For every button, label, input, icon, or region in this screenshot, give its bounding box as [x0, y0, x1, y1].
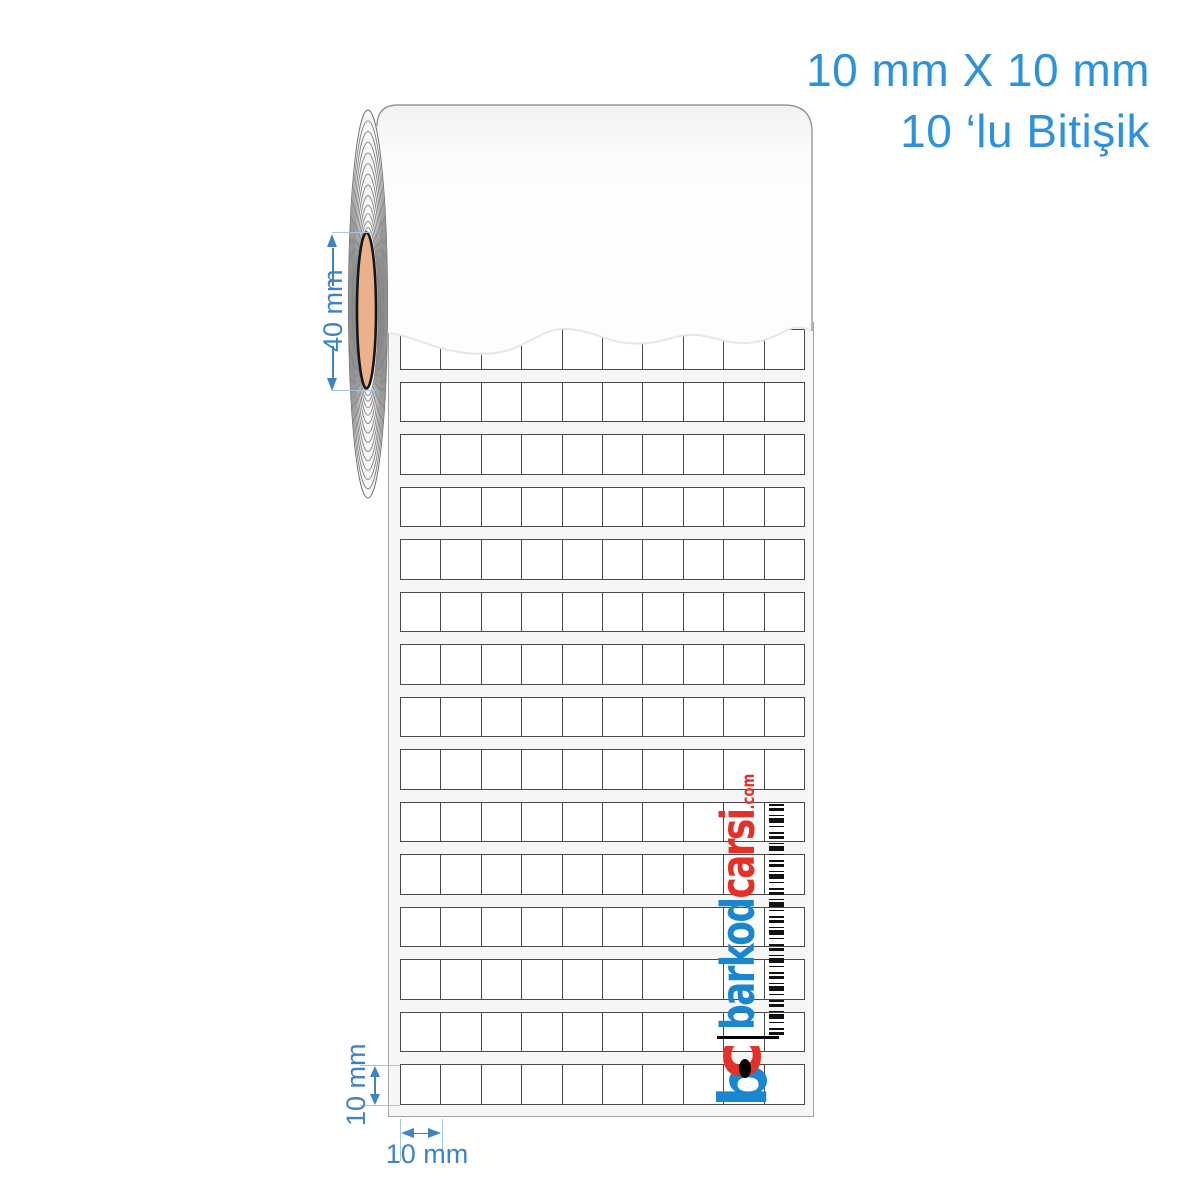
label-cell: [441, 803, 481, 842]
label-row: [400, 592, 805, 633]
label-cell: [563, 540, 603, 579]
brand-icon-dot: [739, 1059, 751, 1078]
arrow-down-icon: [327, 378, 337, 391]
label-cell: [563, 330, 603, 369]
size-caption-line2: 10 ‘lu Bitişik: [806, 101, 1150, 162]
label-row: [400, 697, 805, 738]
label-cell: [684, 645, 724, 684]
label-cell: [603, 383, 643, 422]
label-cell: [522, 750, 562, 789]
label-cell: [765, 330, 804, 369]
sheet-face: [377, 105, 812, 354]
label-cell: [684, 593, 724, 632]
label-cell: [522, 383, 562, 422]
label-cell: [603, 540, 643, 579]
label-cell: [522, 803, 562, 842]
label-cell: [563, 698, 603, 737]
label-cell: [441, 855, 481, 894]
label-cell: [643, 750, 683, 789]
label-cell: [684, 488, 724, 527]
brand-bc-icon: b c: [721, 1041, 791, 1107]
label-cell: [441, 488, 481, 527]
arrow-down-icon: [370, 1094, 380, 1105]
label-roll-product-image: b c barkodcarsi.com 10 mm X 10 mm 10 ‘lu…: [0, 0, 1200, 1200]
label-cell: [603, 1013, 643, 1052]
label-cell: [765, 435, 804, 474]
label-cell: [603, 750, 643, 789]
label-cell: [643, 488, 683, 527]
roll-core: [357, 233, 376, 389]
label-cell: [603, 1065, 643, 1104]
label-cell: [441, 540, 481, 579]
barcode-graphic: [769, 799, 784, 1035]
arrow-up-icon: [327, 234, 337, 247]
label-cell: [401, 1065, 441, 1104]
label-cell: [684, 435, 724, 474]
label-cell: [482, 593, 522, 632]
label-cell: [563, 1013, 603, 1052]
label-cell: [401, 1013, 441, 1052]
label-cell: [482, 803, 522, 842]
label-cell: [482, 698, 522, 737]
label-cell: [603, 593, 643, 632]
label-cell: [603, 698, 643, 737]
label-row: [400, 539, 805, 580]
label-cell: [563, 593, 603, 632]
label-cell: [643, 1065, 683, 1104]
label-height-label: 10 mm: [343, 1046, 369, 1126]
label-cell: [724, 383, 764, 422]
label-cell: [401, 540, 441, 579]
label-cell: [724, 645, 764, 684]
label-cell: [643, 908, 683, 947]
label-cell: [482, 855, 522, 894]
sheet-outline: [377, 105, 812, 331]
label-cell: [603, 855, 643, 894]
label-cell: [684, 698, 724, 737]
brand-divider: [717, 1036, 779, 1039]
label-cell: [482, 435, 522, 474]
arrow-up-icon: [370, 1066, 380, 1077]
label-cell: [401, 383, 441, 422]
size-caption: 10 mm X 10 mm 10 ‘lu Bitişik: [806, 40, 1150, 162]
label-cell: [522, 540, 562, 579]
label-cell: [401, 960, 441, 999]
label-cell: [522, 645, 562, 684]
label-row: [400, 329, 805, 370]
label-cell: [643, 435, 683, 474]
label-cell: [684, 330, 724, 369]
label-cell: [603, 435, 643, 474]
label-cell: [482, 960, 522, 999]
size-caption-line1: 10 mm X 10 mm: [806, 40, 1150, 101]
label-cell: [765, 593, 804, 632]
label-cell: [401, 908, 441, 947]
label-cell: [603, 645, 643, 684]
label-cell: [522, 908, 562, 947]
label-cell: [482, 908, 522, 947]
label-cell: [522, 330, 562, 369]
label-cell: [563, 960, 603, 999]
label-cell: [482, 1065, 522, 1104]
label-cell: [563, 750, 603, 789]
label-cell: [441, 330, 481, 369]
label-cell: [684, 383, 724, 422]
label-cell: [522, 960, 562, 999]
label-cell: [401, 593, 441, 632]
label-cell: [401, 803, 441, 842]
label-cell: [643, 593, 683, 632]
label-cell: [441, 593, 481, 632]
label-cell: [563, 908, 603, 947]
brand-name: barkodcarsi.com: [715, 774, 761, 1030]
label-cell: [482, 750, 522, 789]
label-cell: [603, 488, 643, 527]
label-cell: [643, 803, 683, 842]
label-cell: [441, 383, 481, 422]
label-cell: [643, 330, 683, 369]
label-cell: [643, 1013, 683, 1052]
label-cell: [522, 593, 562, 632]
label-cell: [643, 383, 683, 422]
label-cell: [522, 698, 562, 737]
label-cell: [401, 750, 441, 789]
arrow-left-icon: [401, 1128, 414, 1138]
label-cell: [401, 330, 441, 369]
label-cell: [765, 488, 804, 527]
label-cell: [563, 435, 603, 474]
label-cell: [603, 330, 643, 369]
label-cell: [563, 488, 603, 527]
label-cell: [724, 435, 764, 474]
label-cell: [441, 645, 481, 684]
label-cell: [563, 803, 603, 842]
brand-icon-letter-c: c: [705, 1042, 771, 1079]
label-cell: [522, 1065, 562, 1104]
label-cell: [563, 855, 603, 894]
label-row: [400, 487, 805, 528]
label-cell: [401, 435, 441, 474]
label-cell: [603, 803, 643, 842]
label-cell: [724, 593, 764, 632]
label-cell: [724, 488, 764, 527]
label-row: [400, 434, 805, 475]
label-cell: [441, 1013, 481, 1052]
label-cell: [401, 488, 441, 527]
core-dimension-label: 40 mm: [320, 272, 346, 352]
arrow-right-icon: [428, 1128, 441, 1138]
label-cell: [441, 435, 481, 474]
label-cell: [441, 1065, 481, 1104]
label-cell: [643, 698, 683, 737]
label-cell: [765, 540, 804, 579]
brand-name-primary: barkod: [711, 899, 765, 1030]
label-cell: [643, 960, 683, 999]
dimension-line: [374, 1076, 376, 1095]
label-cell: [522, 435, 562, 474]
label-cell: [482, 383, 522, 422]
label-cell: [765, 750, 804, 789]
label-cell: [482, 645, 522, 684]
label-cell: [482, 330, 522, 369]
label-cell: [765, 645, 804, 684]
label-cell: [401, 855, 441, 894]
label-cell: [482, 488, 522, 527]
label-cell: [522, 488, 562, 527]
label-cell: [482, 1013, 522, 1052]
label-cell: [765, 698, 804, 737]
label-cell: [482, 540, 522, 579]
brand-name-secondary: carsi: [711, 809, 765, 898]
label-cell: [441, 750, 481, 789]
label-cell: [441, 698, 481, 737]
label-cell: [563, 645, 603, 684]
label-cell: [401, 698, 441, 737]
label-cell: [522, 1013, 562, 1052]
brand-watermark: b c barkodcarsi.com: [721, 787, 791, 1107]
label-row: [400, 382, 805, 423]
label-cell: [724, 330, 764, 369]
label-cell: [603, 908, 643, 947]
label-cell: [684, 540, 724, 579]
guide-line: [332, 232, 374, 233]
label-cell: [522, 855, 562, 894]
label-cell: [643, 540, 683, 579]
label-row: [400, 644, 805, 685]
label-cell: [603, 960, 643, 999]
brand-name-tld: .com: [739, 774, 759, 810]
label-width-label: 10 mm: [367, 1141, 487, 1167]
label-cell: [563, 383, 603, 422]
label-cell: [401, 645, 441, 684]
label-cell: [563, 1065, 603, 1104]
label-cell: [765, 383, 804, 422]
label-cell: [441, 908, 481, 947]
label-cell: [441, 960, 481, 999]
guide-line: [332, 390, 376, 391]
label-cell: [643, 645, 683, 684]
label-cell: [724, 698, 764, 737]
label-cell: [643, 855, 683, 894]
label-cell: [724, 540, 764, 579]
